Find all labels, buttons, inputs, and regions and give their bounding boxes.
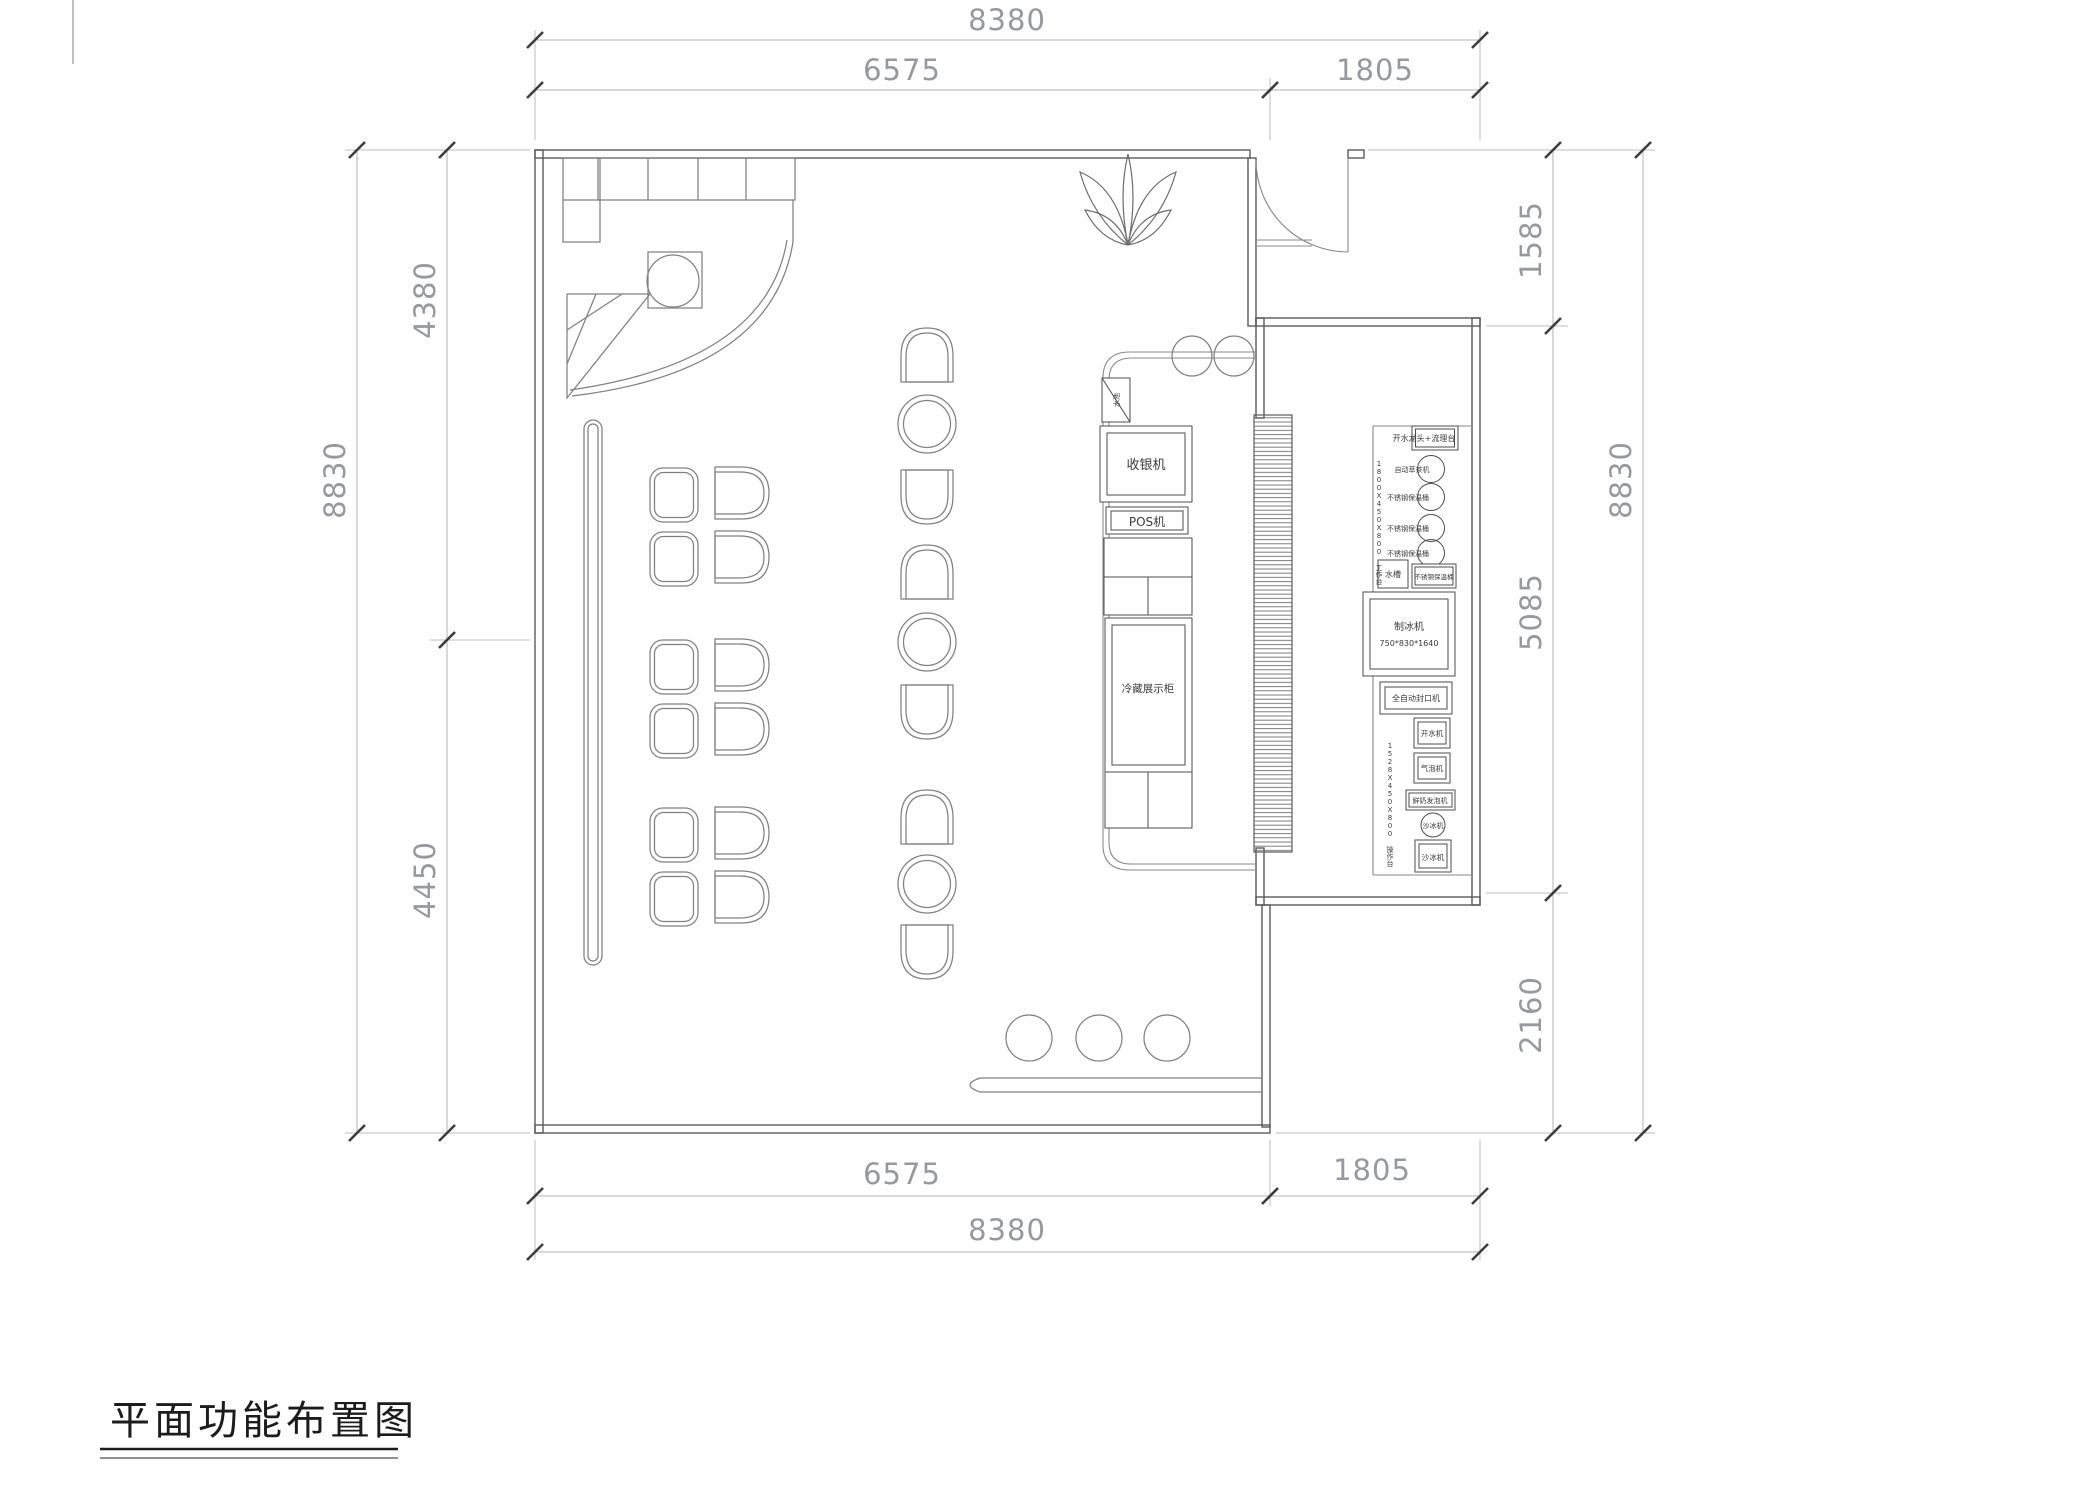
- floor-plan-sheet: 水池 收银机 POS机 冷藏展示柜: [0, 0, 2100, 1485]
- dim-left-total: 8830: [318, 441, 352, 519]
- dim-left-lower: 4450: [408, 841, 442, 919]
- dim-right-lower: 2160: [1514, 976, 1548, 1054]
- soda-machine: 气泡机: [1414, 753, 1450, 783]
- floor-plan-drawing: 水池 收银机 POS机 冷藏展示柜: [0, 0, 2100, 1485]
- dimensions-right: 1585 5085 2160 8830: [1276, 142, 1655, 1141]
- ice-maker-size: 750*830*1640: [1380, 639, 1439, 648]
- dining-chair: [901, 685, 953, 739]
- dim-bottom-left: 6575: [863, 1157, 941, 1191]
- blender-label: 沙冰机: [1422, 852, 1445, 862]
- booth-chair: [715, 467, 769, 519]
- dining-chair: [901, 328, 953, 382]
- tea-extractor: 自动萃茶机: [1395, 456, 1445, 483]
- reception-stool: [647, 255, 699, 307]
- dining-table: [898, 395, 956, 453]
- insulated-barrel: 不锈钢保温桶: [1387, 515, 1445, 542]
- tea-extractor-label: 自动萃茶机: [1395, 465, 1430, 474]
- plant: [1080, 154, 1176, 245]
- dim-top-left: 6575: [863, 53, 941, 87]
- pos-label: POS机: [1129, 515, 1165, 529]
- dim-left-upper: 4380: [408, 261, 442, 339]
- counter-sink-box: 水池: [1102, 378, 1130, 422]
- corner-shelf: [567, 294, 650, 398]
- pos-machine: POS机: [1106, 507, 1188, 534]
- soda-machine-label: 气泡机: [1421, 763, 1444, 773]
- worktable-upper-label: 1800X450X800 工作台: [1375, 460, 1383, 586]
- entry-door: [1256, 150, 1364, 252]
- sealing-machine: 全自动封口机: [1380, 682, 1452, 714]
- ice-maker: 制冰机 750*830*1640: [1363, 592, 1455, 676]
- wall-bench: [584, 420, 602, 965]
- dining-chair: [901, 545, 953, 599]
- milk-frother: 鲜奶发泡机: [1406, 790, 1455, 810]
- reception-table: [648, 252, 702, 308]
- tap-station-label: 开水龙头+流理台: [1393, 433, 1456, 443]
- booth-chair: [715, 871, 769, 923]
- booth-chair: [715, 531, 769, 583]
- worktable-lower-label: 1528X450X800 操作台: [1386, 742, 1394, 868]
- bar-stool: [1144, 1015, 1190, 1061]
- bar-stool: [1076, 1015, 1122, 1061]
- dim-right-upper: 1585: [1514, 201, 1548, 279]
- equipment-worktop: 开水龙头+流理台 自动萃茶机 不锈钢保温桶 不锈钢保温桶 不锈钢保温桶 水槽 不…: [1363, 426, 1472, 875]
- cash-register: 收银机: [1100, 426, 1192, 502]
- counter-stool: [1172, 336, 1212, 376]
- booth-seat: [650, 640, 698, 694]
- drawing-title: 平面功能布置图: [110, 1398, 418, 1444]
- door-stub: [1348, 150, 1364, 158]
- dining-chair: [901, 925, 953, 979]
- water-boiler: 开水机: [1414, 718, 1450, 748]
- center-dining-row: [898, 328, 956, 979]
- barrel-label: 不锈钢保温桶: [1387, 549, 1429, 558]
- sink-label: 水槽: [1385, 569, 1401, 579]
- booth-seating: [650, 467, 769, 926]
- blender-box: 沙冰机: [1415, 840, 1451, 872]
- sink-small-label: 水池: [1112, 393, 1121, 407]
- dim-top-total: 8380: [968, 3, 1046, 37]
- dining-table: [898, 613, 956, 671]
- dim-bottom-right: 1805: [1333, 1153, 1411, 1187]
- insulated-barrel: 不锈钢保温桶: [1387, 484, 1445, 511]
- booth-seat: [650, 468, 698, 522]
- display-fridge: 冷藏展示柜: [1105, 618, 1192, 772]
- entry-display-area: [563, 158, 795, 398]
- counter-stool: [1214, 336, 1254, 376]
- bar-counter-hatched: [1254, 415, 1292, 852]
- curved-partition: [572, 242, 793, 396]
- dining-chair: [901, 790, 953, 844]
- blender-label: 沙冰机: [1423, 821, 1444, 830]
- door-swing-arc: [1256, 160, 1348, 252]
- walls: [535, 150, 1480, 1133]
- bar-stool: [1006, 1015, 1052, 1061]
- booth-chair: [715, 703, 769, 755]
- booth-seat: [650, 808, 698, 862]
- ice-maker-label: 制冰机: [1394, 620, 1424, 633]
- counter-shelves-lower: [1105, 772, 1192, 828]
- dimensions-top: 8380 6575 1805: [527, 3, 1488, 140]
- booth-seat: [650, 872, 698, 926]
- service-counter: 水池 收银机 POS机 冷藏展示柜: [1100, 336, 1256, 870]
- barrel-label: 不锈钢保温桶: [1387, 493, 1429, 502]
- barrel-label: 不锈钢保温桶: [1387, 524, 1429, 533]
- water-boiler-label: 开水机: [1421, 728, 1444, 738]
- title-block: 平面功能布置图: [100, 1398, 418, 1458]
- dining-chair: [901, 470, 953, 524]
- dining-table: [898, 855, 956, 913]
- dim-right-middle: 5085: [1514, 573, 1548, 651]
- dim-right-total: 8830: [1604, 441, 1638, 519]
- milk-frother-label: 鲜奶发泡机: [1413, 796, 1448, 805]
- bottom-bar: [970, 1015, 1262, 1092]
- dimensions-left: 4380 4450 8830: [318, 142, 530, 1141]
- counter-shelves-upper: [1104, 538, 1192, 615]
- tap-station: 开水龙头+流理台: [1393, 426, 1458, 450]
- booth-seat: [650, 532, 698, 586]
- insulated-barrel-box: 不锈钢保温桶: [1412, 564, 1456, 588]
- display-fridge-label: 冷藏展示柜: [1122, 682, 1175, 695]
- dim-top-right: 1805: [1336, 53, 1414, 87]
- dimensions-bottom: 6575 1805 8380: [527, 1140, 1488, 1260]
- booth-seat: [650, 704, 698, 758]
- booth-chair: [715, 807, 769, 859]
- dim-bottom-total: 8380: [968, 1213, 1046, 1247]
- cash-register-label: 收银机: [1126, 458, 1165, 473]
- blender-round: 沙冰机: [1421, 813, 1445, 837]
- booth-chair: [715, 639, 769, 691]
- barrel-label: 不锈钢保温桶: [1415, 572, 1454, 581]
- sealing-machine-label: 全自动封口机: [1392, 693, 1440, 703]
